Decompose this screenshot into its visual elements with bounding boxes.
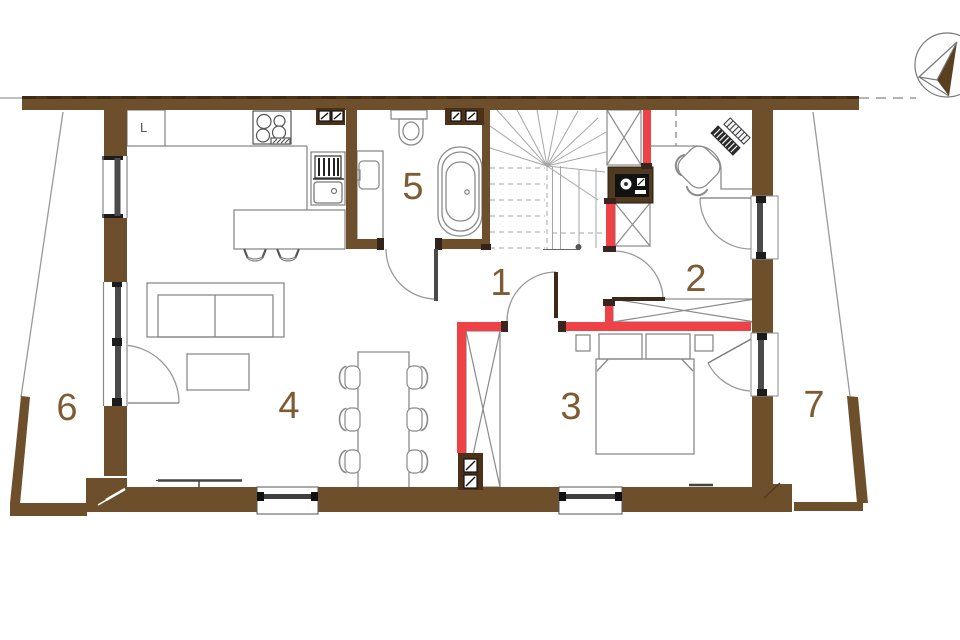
- svg-text:7: 7: [803, 384, 824, 426]
- svg-text:4: 4: [278, 385, 299, 427]
- svg-text:1: 1: [490, 262, 511, 304]
- svg-text:L: L: [140, 120, 147, 135]
- svg-text:2: 2: [685, 258, 706, 300]
- svg-text:3: 3: [560, 386, 581, 428]
- svg-text:5: 5: [402, 166, 423, 208]
- svg-text:6: 6: [56, 387, 77, 429]
